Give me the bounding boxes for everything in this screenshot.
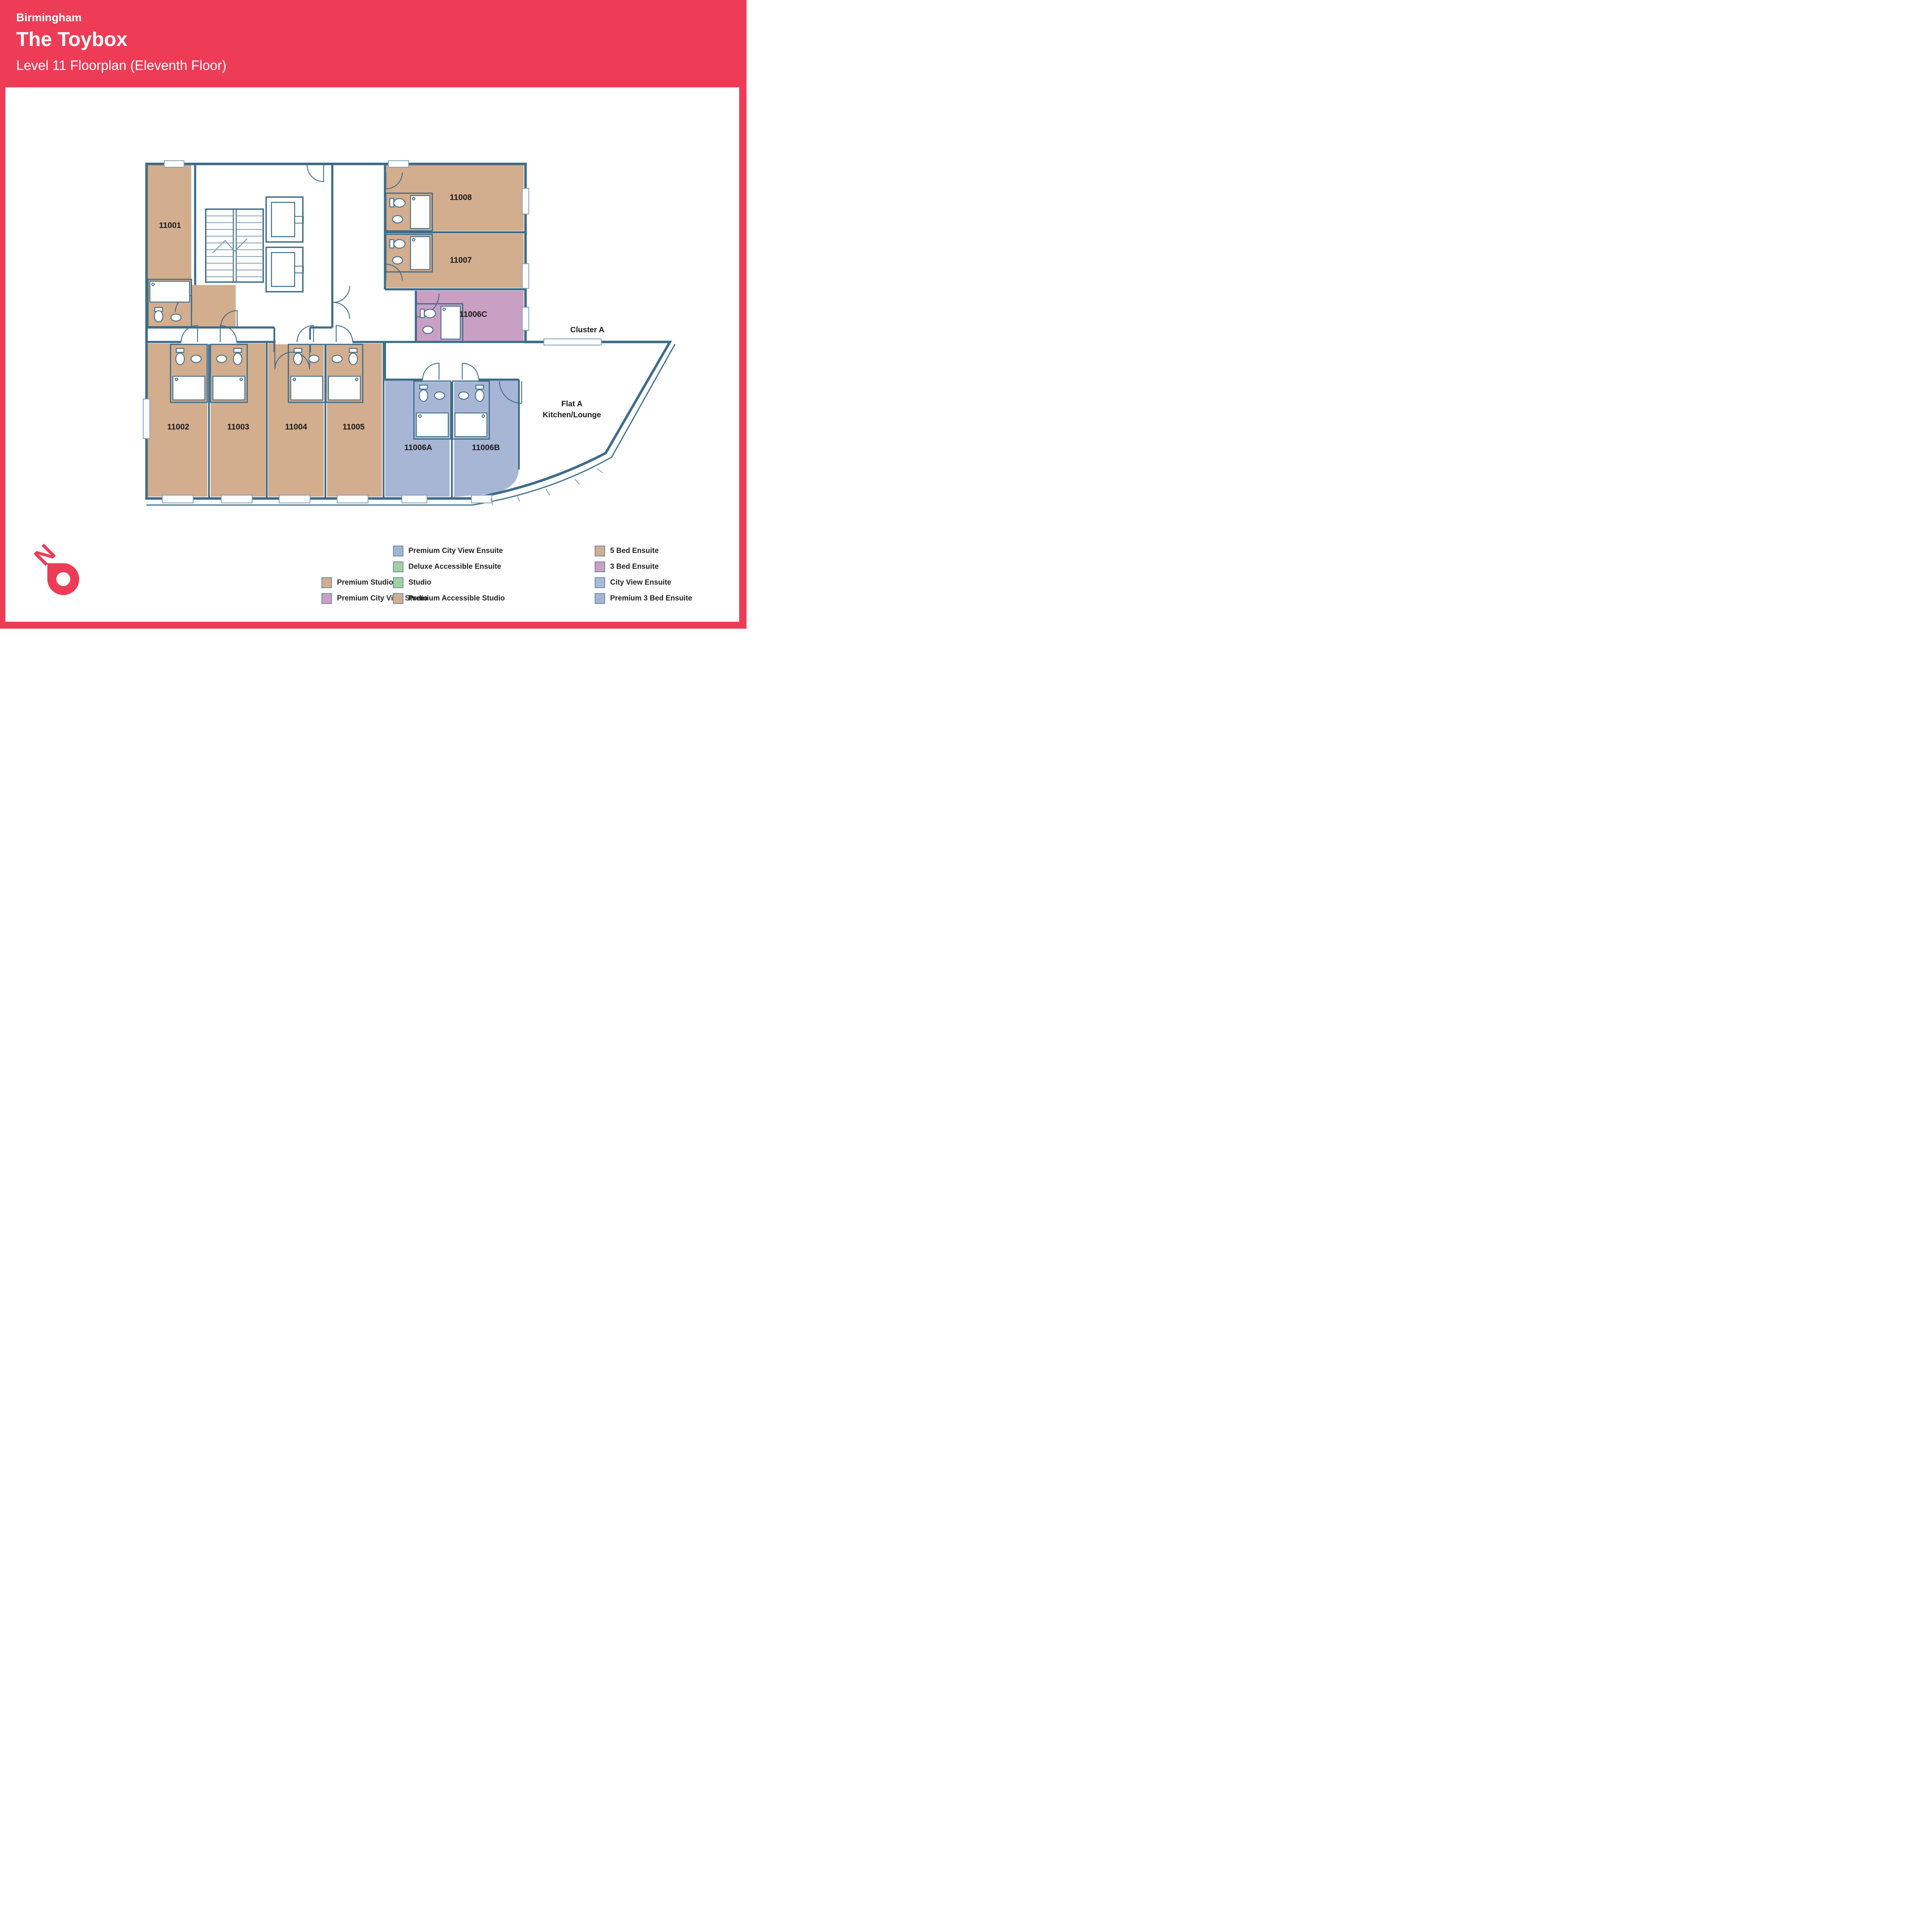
legend-label: Premium City View Ensuite [408,547,503,555]
room-label-11005: 11005 [342,422,365,431]
legend-item-studio: Studio [393,577,431,588]
cluster-annotation: Cluster A [570,326,604,334]
legend-item-deluxe-accessible-ensuite: Deluxe Accessible Ensuite [393,561,501,572]
legend-swatch-studio [393,577,403,588]
room-label-11006B: 11006B [472,443,500,452]
legend-swatch-premium-city-view-ensuite [393,546,403,556]
legend-item-3-bed-ensuite: 3 Bed Ensuite [595,561,659,572]
legend-swatch-premium-accessible-studio [393,593,403,604]
legend-swatch-city-view-ensuite [595,577,605,588]
legend-label: Premium 3 Bed Ensuite [610,594,692,603]
legend-item-5-bed-ensuite: 5 Bed Ensuite [595,546,659,556]
legend-swatch-5-bed-ensuite [595,546,605,556]
room-label-11001: 11001 [159,221,181,230]
room-11005 [327,344,382,497]
legend-label: Premium Accessible Studio [408,594,505,603]
legend-item-premium-accessible-studio: Premium Accessible Studio [393,593,505,604]
flat-annotation-line2: Kitchen/Lounge [543,411,601,419]
room-fills [148,165,524,497]
room-label-11007: 11007 [450,256,472,265]
legend-swatch-premium-studio [321,577,332,588]
legend-swatch-deluxe-accessible-ensuite [393,561,403,572]
room-label-11004: 11004 [285,422,308,431]
legend-swatch-premium-3-bed-ensuite [595,593,605,604]
legend-item-premium-city-view-ensuite: Premium City View Ensuite [393,546,503,556]
legend-label: 5 Bed Ensuite [610,547,659,555]
legend-label: Premium Studio [337,578,393,587]
lift-shafts [266,197,303,292]
flat-annotation-line1: Flat A [561,400,583,408]
legend-item-premium-studio: Premium Studio [321,577,393,588]
room-label-11006C: 11006C [459,310,487,319]
room-label-11003: 11003 [227,422,249,431]
room-label-11008: 11008 [450,193,472,202]
legend-item-premium-3-bed-ensuite: Premium 3 Bed Ensuite [595,593,692,604]
room-label-11002: 11002 [167,422,189,431]
legend-swatch-premium-city-view-studio [321,593,332,604]
floorplan-drawing: 11001 11002 11003 11004 11005 11006A 110… [0,0,747,629]
legend-label: Deluxe Accessible Ensuite [408,563,501,571]
legend-item-city-view-ensuite: City View Ensuite [595,577,671,588]
room-11002 [148,344,207,497]
room-11004 [268,344,324,497]
room-11003 [211,344,265,497]
legend-label: Studio [408,578,431,587]
legend-swatch-3-bed-ensuite [595,561,605,572]
compass-north-icon: N [29,539,79,595]
floorplan-sheet: Birmingham The Toybox Level 11 Floorplan… [0,0,747,629]
legend-label: City View Ensuite [610,578,671,587]
staircase [206,209,264,282]
legend-label: 3 Bed Ensuite [610,563,659,571]
room-label-11006A: 11006A [404,443,432,452]
room-11001-entry [191,285,236,327]
